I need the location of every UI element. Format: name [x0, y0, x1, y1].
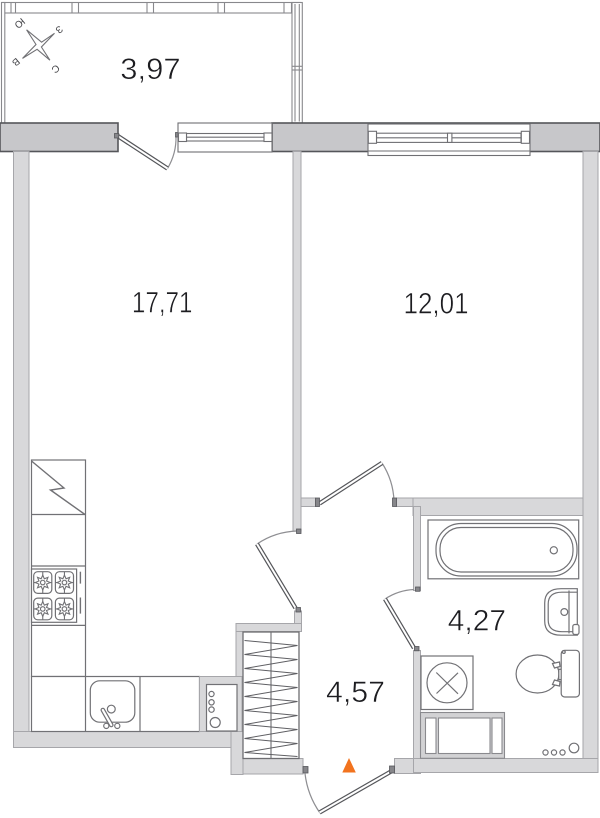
svg-text:12,01: 12,01: [404, 287, 469, 320]
svg-text:4,57: 4,57: [326, 676, 385, 709]
svg-text:17,71: 17,71: [132, 286, 193, 319]
svg-text:4,27: 4,27: [448, 605, 506, 638]
svg-text:3,97: 3,97: [120, 53, 180, 86]
